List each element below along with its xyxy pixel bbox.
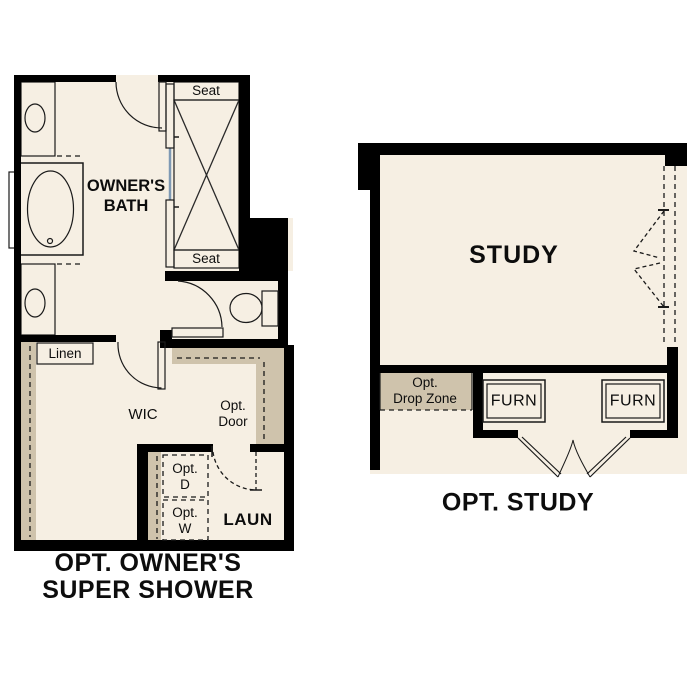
owners-bath-line2: BATH	[87, 196, 165, 216]
wall-laundry-top-2	[250, 444, 294, 452]
wall-block-right	[239, 218, 288, 271]
left-plan	[9, 75, 294, 551]
right-plan-caption: OPT. STUDY	[442, 490, 594, 517]
drop-zone-line1: Opt.	[393, 375, 457, 391]
opt-dryer-label: Opt. D	[172, 461, 198, 493]
seat-top-label: Seat	[192, 83, 220, 99]
study-wall-left	[370, 155, 380, 470]
opt-door-line2: Door	[218, 414, 247, 430]
study-label: STUDY	[469, 240, 559, 270]
left-plan-caption: OPT. OWNER'S SUPER SHOWER	[42, 550, 254, 604]
exterior-mask-right	[288, 271, 293, 345]
wall-top-2	[158, 75, 250, 82]
laundry-label: LAUN	[223, 510, 272, 530]
furnace-right-label: FURN	[610, 391, 656, 410]
wall-top-1	[14, 75, 116, 82]
seat-bottom-label: Seat	[192, 251, 220, 267]
wall-laundry-top	[137, 444, 213, 452]
wall-toilet-top	[165, 271, 288, 281]
study-corner-top-right	[665, 143, 687, 166]
study-wall-right	[667, 373, 678, 438]
exterior-mask-top-right	[250, 75, 293, 218]
furnace-wall-bottom-1	[473, 430, 518, 438]
study-wall-bottom	[370, 365, 678, 373]
opt-door-label: Opt. Door	[218, 398, 247, 430]
owners-bath-line1: OWNER'S	[87, 176, 165, 196]
left-caption-line1: OPT. OWNER'S	[42, 550, 254, 577]
wall-toilet-right	[278, 271, 288, 345]
exterior-mask-left	[358, 190, 370, 474]
left-caption-line2: SUPER SHOWER	[42, 577, 254, 604]
furnace-left-label: FURN	[491, 391, 537, 410]
opt-washer-line1: Opt.	[172, 505, 198, 521]
opt-washer-line2: W	[172, 521, 198, 537]
floorplan-page: Seat Seat OWNER'S BATH Linen WIC Opt. Do…	[0, 0, 687, 687]
wall-toilet-bottom	[160, 339, 288, 348]
linen-label: Linen	[48, 346, 81, 362]
furnace-wall-left	[473, 373, 483, 430]
wall-bath-wic-divider	[14, 335, 116, 342]
opt-dryer-line1: Opt.	[172, 461, 198, 477]
study-floor	[358, 143, 687, 474]
opt-door-line1: Opt.	[218, 398, 247, 414]
wall-laundry-left	[137, 444, 148, 551]
wic-label: WIC	[128, 406, 157, 424]
drop-zone-line2: Drop Zone	[393, 391, 457, 407]
wall-shower-right	[239, 75, 250, 225]
wic-shelf-left	[21, 342, 36, 540]
drop-zone-label: Opt. Drop Zone	[393, 375, 457, 407]
opt-washer-label: Opt. W	[172, 505, 198, 537]
wall-left	[14, 75, 21, 551]
wall-corner-chunk	[160, 330, 172, 340]
study-wall-top	[358, 143, 665, 155]
owners-bath-label: OWNER'S BATH	[87, 176, 165, 216]
wic-shelf-right	[256, 348, 284, 452]
opt-dryer-line2: D	[172, 477, 198, 493]
right-plan	[358, 143, 687, 477]
furnace-wall-bottom-2	[630, 430, 678, 438]
laundry-shelf	[148, 452, 161, 540]
